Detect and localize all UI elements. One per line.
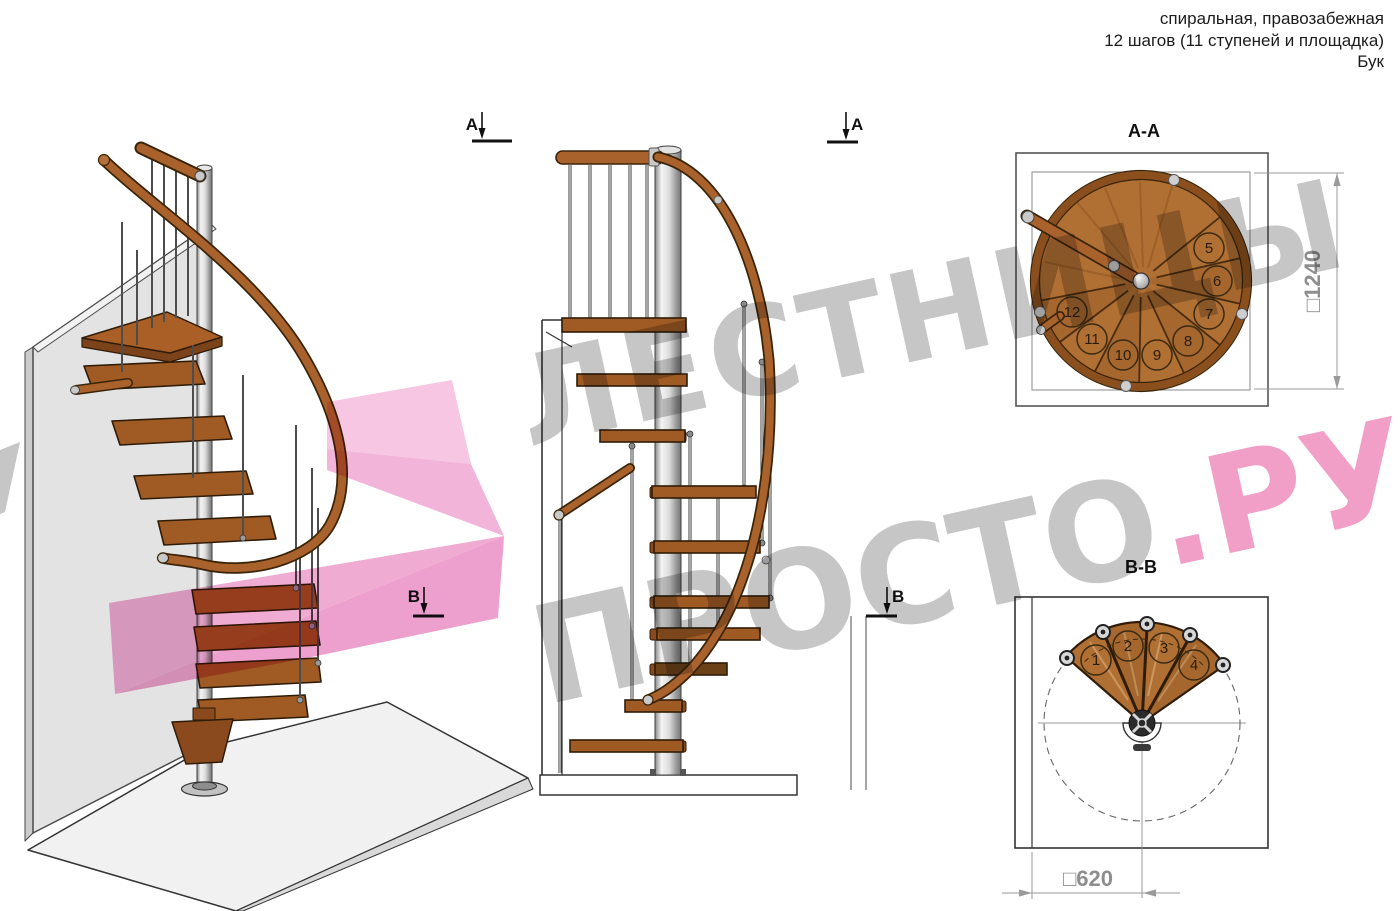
header-line-type: спиральная, правозабежная bbox=[1104, 8, 1384, 30]
header-line-material: Бук bbox=[1104, 51, 1384, 73]
watermark-layer: ЛЕСТНИЦЫ ПРОСТО.РУ bbox=[0, 0, 1400, 911]
arrow-facet-mid bbox=[327, 449, 504, 536]
header-line-steps: 12 шагов (11 ступеней и площадка) bbox=[1104, 30, 1384, 52]
watermark-letter-fragment bbox=[0, 442, 20, 514]
watermark-line2-pink: .РУ bbox=[1140, 390, 1400, 600]
drawing-page: А А В В А-А □124 bbox=[0, 0, 1400, 911]
title-block: спиральная, правозабежная 12 шагов (11 с… bbox=[1104, 8, 1384, 73]
watermark-line2-gray: ПРОСТО bbox=[518, 445, 1174, 737]
watermark-arrow-logo bbox=[109, 380, 504, 694]
